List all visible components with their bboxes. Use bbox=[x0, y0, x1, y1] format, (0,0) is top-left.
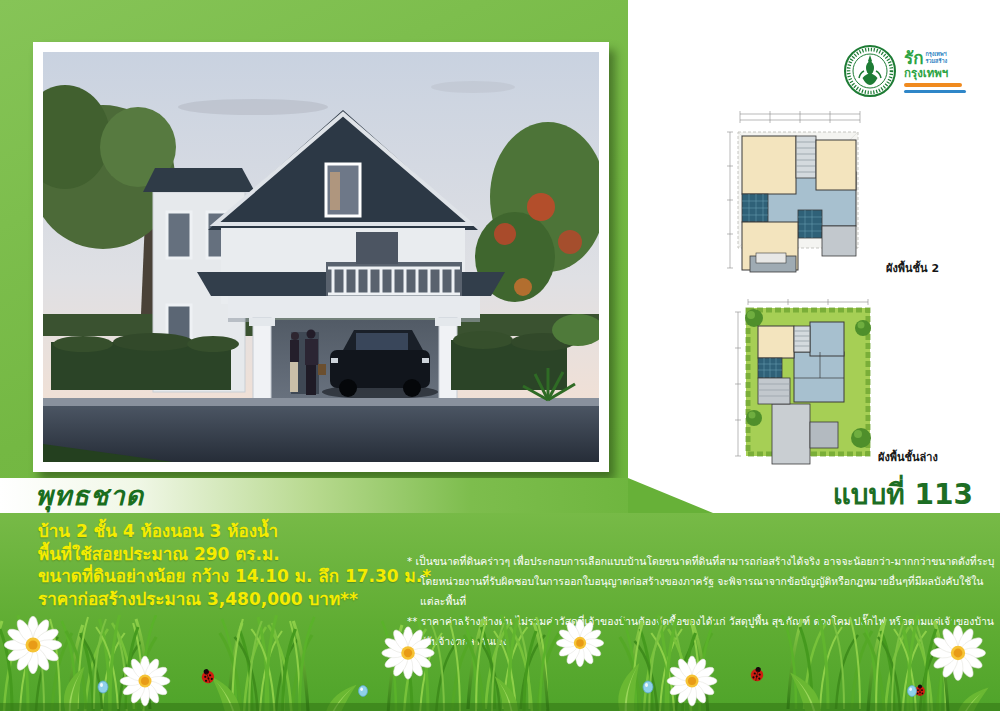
house-rendering bbox=[43, 52, 599, 462]
spec-rooms: บ้าน 2 ชั้น 4 ห้องนอน 3 ห้องน้ำ bbox=[38, 520, 431, 543]
floor-plan-lower-caption: ผังพื้นชั้นล่าง bbox=[878, 448, 938, 466]
diagonal-join bbox=[628, 478, 713, 513]
footnote-1-line-1: * เป็นขนาดที่ดินคร่าวๆ เพื่อประกอบการเลื… bbox=[407, 551, 997, 571]
house-name: พุทธชาด bbox=[0, 474, 144, 517]
spec-price: ราคาก่อสร้างประมาณ 3,480,000 บาท** bbox=[38, 588, 431, 611]
spec-land: ขนาดที่ดินอย่างน้อย กว้าง 14.10 ม. ลึก 1… bbox=[38, 565, 431, 588]
diagonal-shape bbox=[628, 478, 713, 513]
logo-small-bottom: ร่วมสร้าง bbox=[925, 59, 947, 65]
grass-strip bbox=[0, 615, 1000, 711]
floor-plan-upper-caption: ผังพื้นชั้น 2 bbox=[886, 259, 939, 277]
title-band: พุทธชาด bbox=[0, 478, 628, 513]
ladybugs bbox=[200, 666, 925, 696]
bma-logo: รัก กรุงเทพฯ ร่วมสร้าง กรุงเทพฯ bbox=[843, 44, 966, 98]
design-number: แบบที่ 113 bbox=[833, 474, 973, 514]
floor-plan-lower-drawing bbox=[732, 298, 884, 470]
floor-plan-lower bbox=[732, 298, 884, 474]
floor-plan-upper bbox=[722, 106, 872, 280]
logo-blue-script bbox=[904, 90, 966, 94]
brochure-page: รัก กรุงเทพฯ ร่วมสร้าง กรุงเทพฯ bbox=[0, 0, 1000, 711]
logo-orange-script bbox=[904, 83, 962, 87]
logo-love-label: รัก bbox=[904, 50, 923, 67]
grass-illustration bbox=[0, 615, 1000, 711]
footnote-1-line-2: โดยหน่วยงานที่รับผิดชอบในการออกใบอนุญาตก… bbox=[407, 571, 997, 611]
logo-small-top: กรุงเทพฯ bbox=[925, 52, 947, 58]
spec-area: พื้นที่ใช้สอยประมาณ 290 ตร.ม. bbox=[38, 543, 431, 566]
bma-seal-icon bbox=[843, 44, 897, 98]
logo-bangkok-label: กรุงเทพฯ bbox=[904, 68, 966, 80]
floor-plan-upper-drawing bbox=[722, 106, 872, 276]
house-photo bbox=[33, 42, 609, 472]
spec-list: บ้าน 2 ชั้น 4 ห้องนอน 3 ห้องน้ำ พื้นที่ใ… bbox=[38, 520, 431, 610]
bma-logo-text: รัก กรุงเทพฯ ร่วมสร้าง กรุงเทพฯ bbox=[904, 44, 966, 93]
